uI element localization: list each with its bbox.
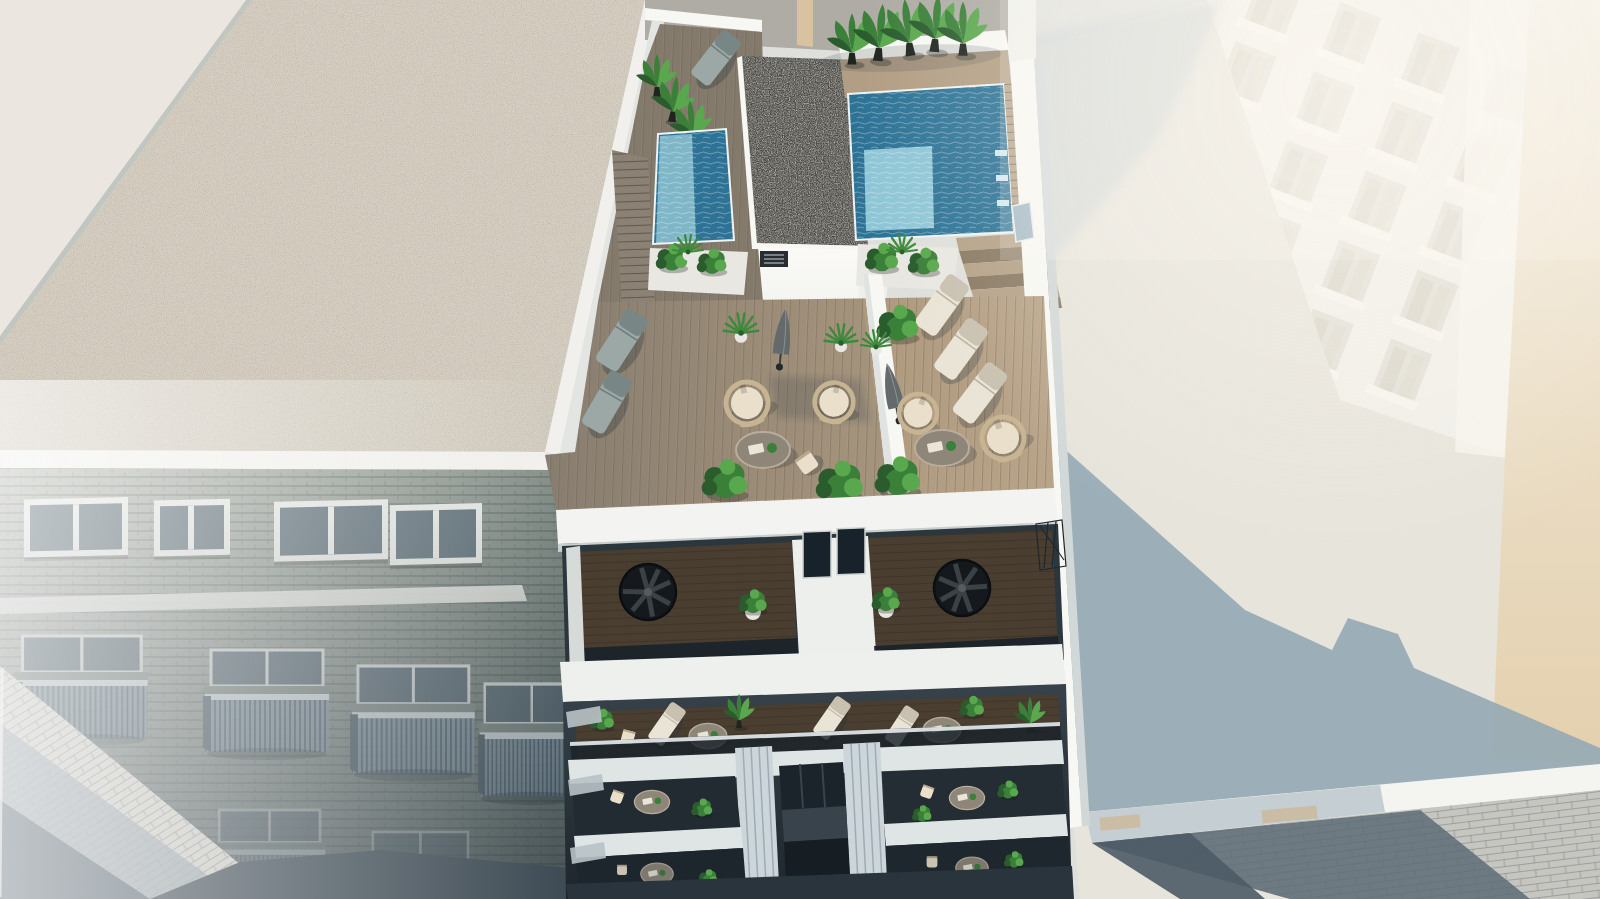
glass-door	[837, 528, 865, 575]
penthouse-center-wall	[792, 528, 876, 656]
render-canvas	[0, 0, 1600, 899]
top-right-wash	[1000, 0, 1600, 260]
glass-door	[803, 531, 831, 578]
lit-corner-strip	[797, 0, 813, 47]
pilaster-right	[843, 742, 887, 884]
lower-facade	[563, 684, 1074, 899]
center-slab	[782, 806, 848, 842]
pool-left	[653, 129, 734, 244]
center-window	[784, 838, 850, 878]
left-haze	[0, 380, 560, 899]
center-window	[779, 762, 846, 810]
penthouse-level	[560, 520, 1066, 702]
architectural-render	[0, 0, 1600, 899]
vent-grille	[760, 251, 788, 267]
